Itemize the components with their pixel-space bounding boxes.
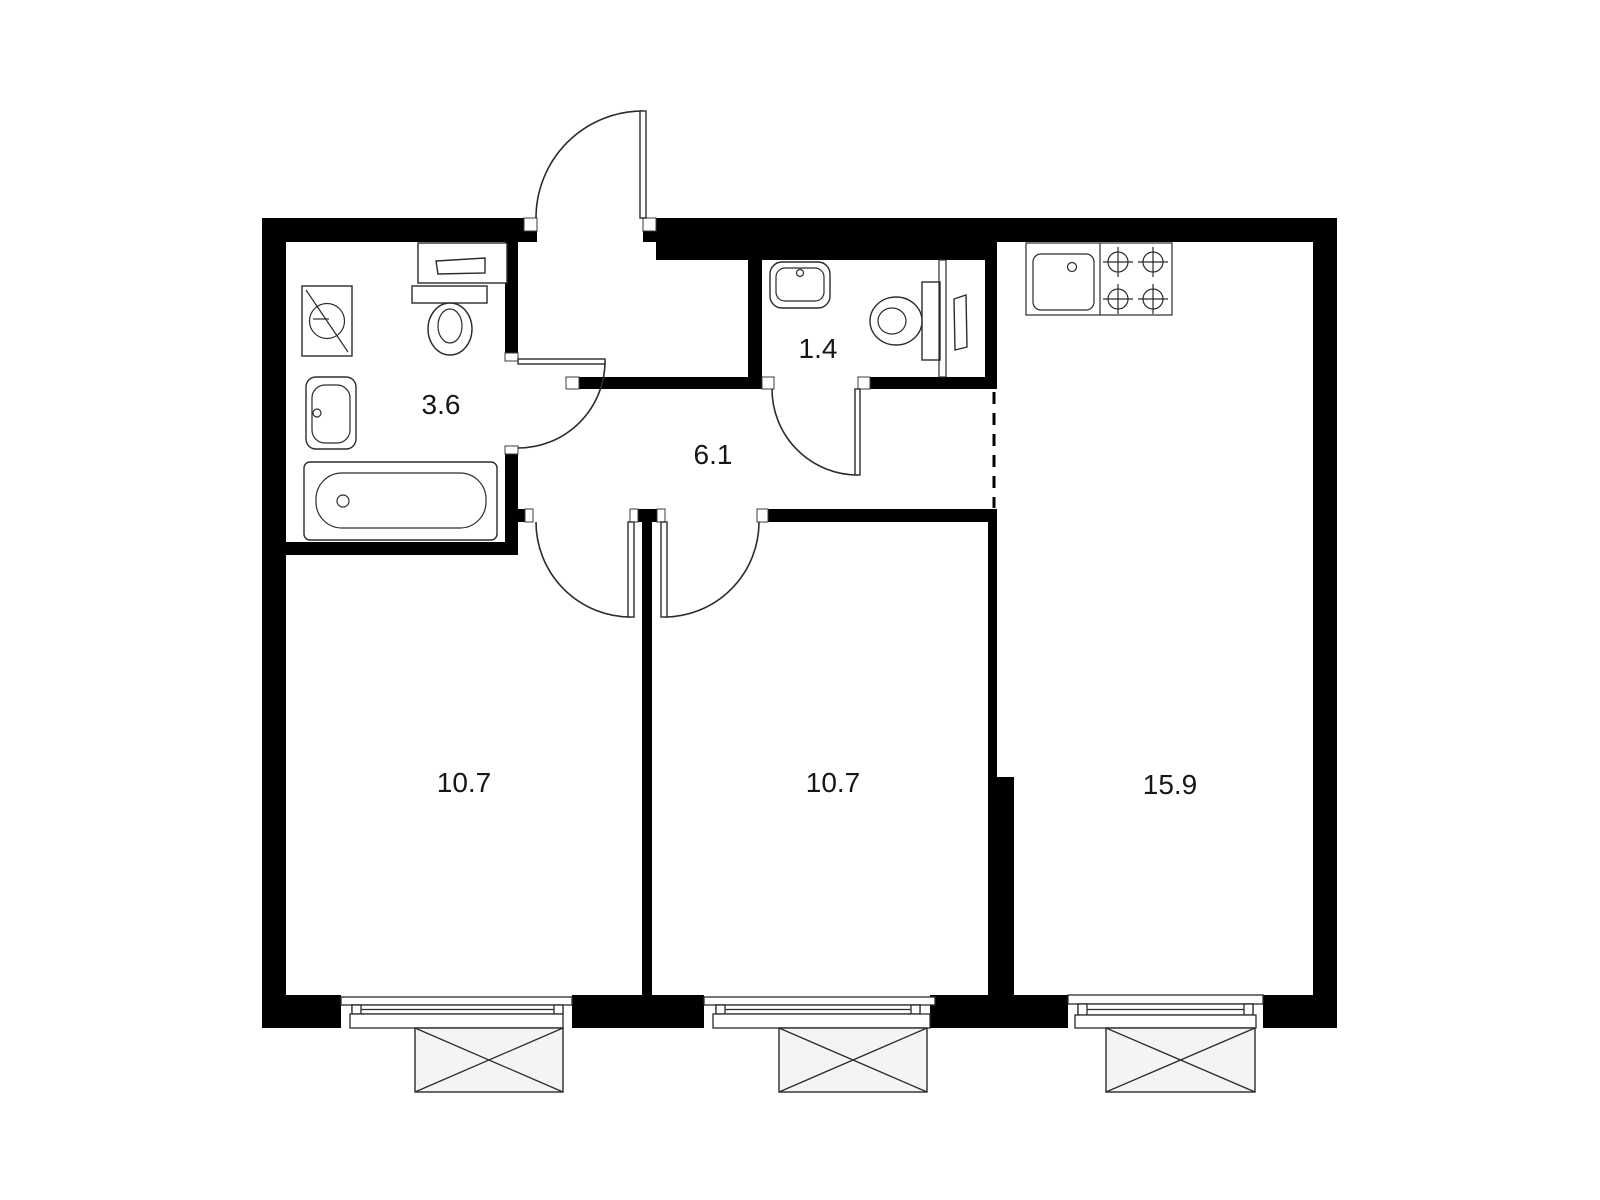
wc-door-jamb-left	[762, 377, 774, 389]
wall-left	[262, 218, 286, 1028]
wc-left-wall	[748, 260, 762, 377]
bathroom-door-jamb-bottom	[505, 446, 518, 454]
bathroom-door-leaf	[518, 359, 605, 364]
window-inner-sill	[341, 997, 572, 1005]
wc-right-wall	[985, 260, 997, 377]
window-kitchen	[1068, 995, 1263, 1092]
bathroom-fixtures	[302, 243, 507, 540]
bathroom-door-jamb-top	[505, 353, 518, 361]
wc-door-leaf	[855, 389, 860, 475]
wall-bottom-2	[572, 995, 704, 1028]
window-frame-end	[352, 1005, 361, 1014]
room-left-door-jamb-right	[630, 509, 638, 522]
room-left-door-arc	[536, 522, 631, 617]
kitchen-sink-icon	[1033, 254, 1094, 310]
kitchen-fixtures	[1026, 243, 1172, 315]
hall-wall-end-jamb	[566, 377, 579, 389]
wc-toilet-icon	[870, 282, 940, 360]
window-room-left	[341, 997, 572, 1092]
wash-basin-icon	[306, 377, 356, 449]
entrance-door-leaf	[640, 111, 646, 218]
room-kitchen-wall-upper	[988, 522, 997, 777]
wall-bottom-1	[262, 995, 341, 1028]
wc-area-label: 1.4	[799, 333, 838, 364]
room-middle-door-jamb-left	[657, 509, 665, 522]
window-outer-sill	[350, 1014, 563, 1028]
water-heater-shelf-icon	[418, 243, 507, 283]
bathtub-icon	[304, 462, 497, 540]
window-inner-sill	[1068, 995, 1263, 1004]
middle-room-top-wall	[768, 509, 997, 522]
window-frame-end	[911, 1005, 920, 1014]
floor-plan-canvas: 3.6 1.4 6.1 10.7 10.7 15.9	[0, 0, 1600, 1200]
entrance-door	[536, 111, 646, 218]
wall-between-rooms	[642, 522, 652, 995]
bathroom-bottom-wall	[286, 542, 518, 555]
entrance-door-arc	[536, 111, 643, 218]
wc-door-jamb-right	[858, 377, 870, 389]
wall-top-right	[643, 218, 1337, 242]
room-left-door-leaf	[628, 522, 634, 617]
wall-right	[1313, 218, 1337, 1028]
toilet-icon	[412, 286, 487, 355]
room-middle-door-arc	[664, 522, 759, 617]
window-outer-sill	[713, 1014, 930, 1028]
wall-top-thick-section	[656, 242, 997, 260]
window-outer-sill	[1075, 1015, 1256, 1028]
window-frame-end	[1244, 1004, 1253, 1015]
wall-stub	[518, 509, 525, 522]
hallway-area-label: 6.1	[694, 439, 733, 470]
room-middle-door-leaf	[661, 522, 667, 617]
burner-icon	[1138, 247, 1168, 277]
burner-icon	[1138, 284, 1168, 314]
window-frame-end	[716, 1005, 725, 1014]
bathroom-door	[518, 359, 605, 448]
wc-bottom-wall-right	[870, 377, 997, 389]
hall-top-wall	[579, 377, 762, 389]
room-middle-area-label: 10.7	[806, 767, 861, 798]
window-room-middle	[704, 997, 935, 1092]
burner-icon	[1103, 247, 1133, 277]
room-left-door	[536, 522, 634, 617]
room-left-area-label: 10.7	[437, 767, 492, 798]
entrance-jamb-left	[524, 218, 537, 231]
burner-icon	[1103, 284, 1133, 314]
window-inner-sill	[704, 997, 935, 1005]
entrance-jamb-right	[643, 218, 656, 231]
windows	[341, 995, 1263, 1092]
doors	[518, 111, 860, 617]
wc-door-arc	[772, 389, 858, 475]
interior-walls	[286, 242, 1014, 995]
washing-machine-icon	[302, 286, 352, 356]
wc-door	[772, 389, 860, 475]
kitchen-area-label: 15.9	[1143, 769, 1198, 800]
room-middle-door-jamb-right	[757, 509, 768, 522]
wall-top-left	[262, 218, 537, 242]
room-middle-door	[661, 522, 759, 617]
wall-cap-between-doors	[638, 509, 657, 522]
window-frame-end	[554, 1005, 563, 1014]
wc-sink-icon	[770, 262, 830, 308]
bathroom-right-wall-lower	[505, 454, 518, 542]
stove-icon	[1103, 247, 1168, 314]
wall-panel-icon	[954, 295, 967, 350]
room-left-door-jamb-left	[525, 509, 533, 522]
room-area-labels: 3.6 1.4 6.1 10.7 10.7 15.9	[422, 333, 1198, 800]
bathroom-area-label: 3.6	[422, 389, 461, 420]
floor-plan: 3.6 1.4 6.1 10.7 10.7 15.9	[0, 0, 1600, 1200]
wall-bottom-4	[1263, 995, 1337, 1028]
wall-bottom-3	[930, 995, 1068, 1028]
window-frame-end	[1078, 1004, 1087, 1015]
room-kitchen-wall-lower	[988, 777, 1014, 995]
bathroom-door-arc	[518, 361, 605, 448]
